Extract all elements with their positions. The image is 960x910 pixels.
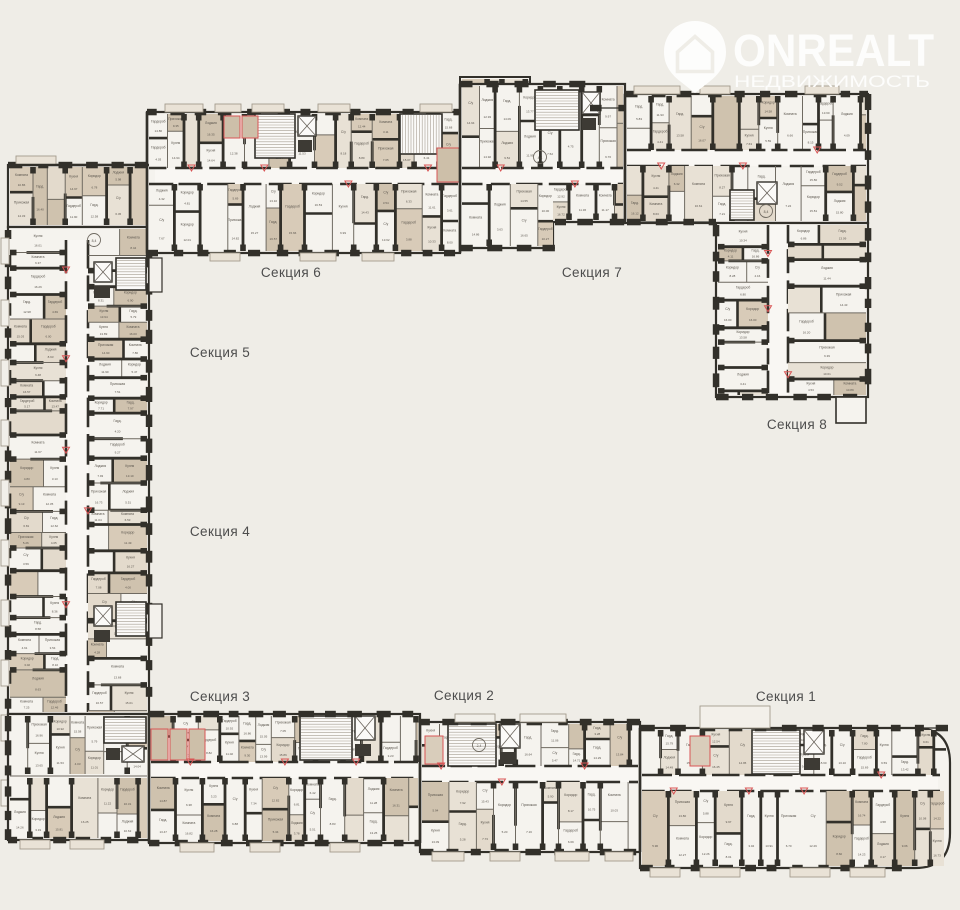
svg-text:15.58: 15.58 (74, 729, 82, 733)
svg-text:12.54: 12.54 (712, 739, 720, 743)
svg-text:12.26: 12.26 (702, 852, 710, 856)
svg-text:Кухня: Кухня (49, 535, 58, 539)
svg-text:7.05: 7.05 (280, 729, 286, 733)
svg-text:Лоджия: Лоджия (877, 842, 889, 846)
svg-text:14.26: 14.26 (16, 825, 24, 829)
svg-text:Гард.: Гард. (588, 792, 596, 796)
svg-text:Гард.: Гард. (159, 818, 167, 822)
svg-text:6.78: 6.78 (91, 186, 97, 190)
svg-text:13.84: 13.84 (616, 753, 624, 757)
svg-text:7.05: 7.05 (383, 158, 389, 162)
svg-text:11.99: 11.99 (526, 153, 534, 157)
svg-text:Прихожая: Прихожая (715, 174, 730, 178)
svg-text:Комната: Комната (855, 800, 868, 804)
svg-text:16.72: 16.72 (557, 213, 565, 217)
svg-text:13.47: 13.47 (159, 830, 167, 834)
svg-text:Прихожая: Прихожая (87, 725, 102, 729)
svg-text:Комната: Комната (157, 786, 170, 790)
svg-text:Комната: Комната (241, 745, 254, 749)
svg-text:С/у: С/у (273, 786, 278, 790)
svg-text:Коридор: Коридор (762, 101, 775, 105)
svg-text:14.09: 14.09 (503, 117, 511, 121)
svg-text:Прихожая: Прихожая (268, 817, 283, 821)
svg-text:Гард.: Гард. (51, 656, 59, 660)
svg-text:Гард.: Гард. (90, 203, 98, 207)
svg-text:С/у: С/у (233, 797, 238, 801)
svg-text:8.83: 8.83 (330, 822, 336, 826)
svg-text:Секция 2: Секция 2 (434, 688, 494, 703)
svg-text:Комната: Комната (649, 202, 662, 206)
svg-text:Прихожая: Прихожая (275, 721, 290, 725)
svg-text:Комната: Комната (608, 793, 621, 797)
svg-text:Коридор: Коридор (807, 195, 820, 199)
svg-text:Лоджия: Лоджия (368, 787, 380, 791)
svg-text:4.41: 4.41 (653, 186, 659, 190)
svg-text:12.27: 12.27 (679, 853, 687, 857)
svg-text:Гардероб: Гардероб (120, 788, 135, 792)
svg-text:Кухня: Кухня (34, 366, 43, 370)
svg-text:5.20: 5.20 (502, 830, 508, 834)
svg-text:Гард.: Гард. (718, 202, 726, 206)
svg-text:7.08: 7.08 (96, 585, 102, 589)
svg-text:5.47: 5.47 (131, 370, 137, 374)
svg-text:Лоджия: Лоджия (737, 373, 749, 377)
svg-text:Коридор: Коридор (128, 363, 141, 367)
svg-text:Коридор: Коридор (539, 194, 552, 198)
svg-text:Лоджия: Лоджия (53, 815, 65, 819)
svg-text:С/у: С/у (102, 600, 107, 604)
svg-text:14.04: 14.04 (133, 765, 141, 769)
svg-text:Лоджия: Лоджия (258, 723, 270, 727)
svg-text:Секция 3: Секция 3 (190, 689, 250, 704)
svg-text:7.92: 7.92 (460, 801, 466, 805)
svg-text:Гард.: Гард. (459, 822, 467, 826)
svg-text:Гард.: Гард. (23, 300, 31, 304)
svg-text:Гард.: Гард. (593, 745, 601, 749)
svg-text:3.63: 3.63 (497, 228, 503, 232)
svg-text:Комната: Комната (43, 492, 56, 496)
svg-text:3.28: 3.28 (594, 732, 600, 736)
svg-text:15.01: 15.01 (125, 701, 133, 705)
svg-text:Комната: Комната (32, 441, 45, 445)
svg-text:14.55: 14.55 (520, 199, 528, 203)
svg-text:8.58: 8.58 (35, 627, 41, 631)
svg-text:С/у: С/у (548, 131, 553, 135)
svg-text:Гард.: Гард. (36, 184, 44, 188)
svg-text:6.99: 6.99 (340, 231, 346, 235)
svg-text:7.16: 7.16 (526, 830, 532, 834)
svg-text:С/у: С/у (811, 814, 816, 818)
svg-text:14.87: 14.87 (159, 799, 167, 803)
svg-text:4.00: 4.00 (125, 585, 131, 589)
svg-text:Гардероб: Гардероб (799, 320, 814, 324)
svg-text:Комната: Комната (355, 117, 368, 121)
svg-text:НЕДВИЖИМОСТЬ: НЕДВИЖИМОСТЬ (734, 72, 930, 91)
svg-text:Коридор: Коридор (833, 835, 846, 839)
svg-text:Гард.: Гард. (129, 309, 137, 313)
svg-text:Коридор: Коридор (797, 229, 810, 233)
svg-text:Гард.: Гард. (50, 516, 58, 520)
svg-text:Гардероб: Гардероб (383, 746, 398, 750)
svg-text:16.00: 16.00 (749, 318, 757, 322)
svg-text:3.54: 3.54 (50, 646, 56, 650)
svg-text:С/у: С/у (703, 799, 708, 803)
svg-text:14.94: 14.94 (467, 121, 475, 125)
svg-text:12.44: 12.44 (358, 124, 366, 128)
svg-text:11.44: 11.44 (823, 277, 831, 281)
svg-text:13.68: 13.68 (114, 675, 122, 679)
svg-text:15.03: 15.03 (17, 335, 25, 339)
svg-text:8,4: 8,4 (764, 210, 769, 214)
svg-text:Комната: Комната (18, 638, 31, 642)
svg-text:4.09: 4.09 (844, 134, 850, 138)
svg-text:8.63: 8.63 (35, 687, 41, 691)
svg-text:3.11: 3.11 (383, 130, 389, 134)
svg-text:Кухня: Кухня (900, 814, 909, 818)
svg-text:13.65: 13.65 (35, 763, 43, 767)
svg-text:Комната: Комната (182, 821, 195, 825)
svg-text:7.71: 7.71 (98, 406, 104, 410)
svg-text:Гардероб: Гардероб (222, 719, 237, 723)
svg-text:9.13: 9.13 (19, 502, 25, 506)
svg-text:14.64: 14.64 (207, 159, 215, 163)
svg-text:4.03: 4.03 (155, 158, 161, 162)
svg-text:Секция 1: Секция 1 (756, 689, 816, 704)
svg-text:14.23: 14.23 (858, 853, 866, 857)
svg-text:Гардероб: Гардероб (20, 399, 35, 403)
svg-text:Кухня: Кухня (724, 803, 733, 807)
svg-text:Коридор: Коридор (88, 756, 101, 760)
svg-text:4.32: 4.32 (159, 197, 165, 201)
svg-text:5.26: 5.26 (23, 541, 29, 545)
svg-text:Комната: Комната (129, 343, 142, 347)
svg-text:С/у: С/у (468, 101, 473, 105)
svg-text:16.28: 16.28 (210, 829, 218, 833)
svg-text:14.82: 14.82 (232, 236, 240, 240)
svg-text:3.04: 3.04 (748, 844, 754, 848)
svg-text:4.58: 4.58 (880, 820, 886, 824)
svg-text:Коридор: Коридор (121, 531, 134, 535)
svg-text:14.49: 14.49 (666, 766, 674, 770)
svg-text:Кухня: Кухня (765, 814, 774, 818)
svg-text:Гардероб: Гардероб (832, 172, 847, 176)
svg-text:Лоджия: Лоджия (671, 172, 683, 176)
svg-text:10.89: 10.89 (846, 388, 854, 392)
svg-text:С/у: С/у (183, 721, 188, 725)
svg-text:Комната: Комната (576, 194, 589, 198)
svg-text:8.80: 8.80 (359, 156, 365, 160)
svg-text:Кухня: Кухня (69, 175, 78, 179)
svg-text:Коридор: Коридор (181, 191, 194, 195)
svg-text:6.69: 6.69 (568, 840, 574, 844)
svg-text:Гард.: Гард. (269, 220, 277, 224)
svg-text:Лоджия: Лоджия (122, 819, 134, 823)
svg-text:Гардероб: Гардероб (151, 146, 166, 150)
svg-text:16.45: 16.45 (712, 765, 720, 769)
svg-text:Прихожая: Прихожая (110, 382, 125, 386)
svg-text:7.51: 7.51 (115, 390, 121, 394)
svg-text:Комната: Комната (443, 229, 456, 233)
svg-text:16.31: 16.31 (124, 802, 132, 806)
svg-text:Кухня: Кухня (481, 821, 490, 825)
svg-text:14.94: 14.94 (172, 156, 180, 160)
svg-text:5.34: 5.34 (273, 830, 279, 834)
svg-text:13.09: 13.09 (432, 840, 440, 844)
svg-text:11.93: 11.93 (656, 113, 664, 117)
svg-text:10.03: 10.03 (610, 809, 618, 813)
svg-text:5.88: 5.88 (703, 812, 709, 816)
svg-text:Коридор: Коридор (312, 191, 325, 195)
svg-text:Кухня: Кухня (126, 556, 135, 560)
svg-text:Прихожая: Прихожая (18, 535, 33, 539)
svg-text:Коридор: Коридор (699, 835, 712, 839)
svg-text:4,4: 4,4 (538, 156, 543, 160)
svg-text:9.35: 9.35 (173, 124, 179, 128)
svg-text:14.95: 14.95 (739, 761, 747, 765)
svg-text:Секция 6: Секция 6 (261, 265, 321, 280)
svg-text:Гард.: Гард. (901, 760, 909, 764)
svg-text:С/у: С/у (522, 219, 527, 223)
svg-text:7.63: 7.63 (746, 142, 752, 146)
svg-text:16.73: 16.73 (933, 854, 941, 858)
svg-text:Лоджия: Лоджия (663, 755, 675, 759)
svg-text:Кухня: Кухня (50, 466, 59, 470)
svg-text:Комната: Комната (207, 814, 220, 818)
svg-text:Кухня: Кухня (426, 728, 435, 732)
svg-text:3.78: 3.78 (294, 831, 300, 835)
svg-text:6.41: 6.41 (424, 156, 430, 160)
svg-text:15.81: 15.81 (55, 827, 63, 831)
svg-text:С/у: С/у (483, 789, 488, 793)
svg-text:Лоджия: Лоджия (249, 204, 261, 208)
svg-text:16.74: 16.74 (858, 814, 866, 818)
svg-text:16.57: 16.57 (96, 701, 104, 705)
svg-text:15.80: 15.80 (810, 178, 818, 182)
svg-text:Кухня: Кухня (764, 126, 773, 130)
svg-text:Комната: Комната (91, 643, 104, 647)
svg-text:С/у: С/у (383, 222, 388, 226)
svg-text:3.54: 3.54 (383, 201, 389, 205)
svg-text:11.22: 11.22 (104, 801, 112, 805)
svg-text:11.04: 11.04 (94, 518, 102, 522)
svg-text:Кухня: Кухня (99, 325, 108, 329)
svg-text:Кухня: Кухня (431, 829, 440, 833)
svg-text:Прихожая: Прихожая (521, 803, 536, 807)
svg-text:Лоджия: Лоджия (122, 490, 134, 494)
svg-text:Гардероб: Гардероб (354, 141, 369, 145)
svg-text:Прихожая: Прихожая (45, 638, 60, 642)
svg-text:Лоджия: Лоджия (112, 170, 124, 174)
svg-text:8.36: 8.36 (52, 609, 58, 613)
svg-text:8.44: 8.44 (130, 246, 136, 250)
svg-text:9.30: 9.30 (244, 754, 250, 758)
svg-text:11.67: 11.67 (34, 450, 42, 454)
svg-text:Кухня: Кухня (933, 839, 942, 843)
svg-text:Лоджия: Лоджия (32, 677, 44, 681)
svg-text:Гардероб: Гардероб (857, 755, 872, 759)
svg-text:С/у: С/у (713, 753, 718, 757)
svg-text:С/у: С/у (271, 189, 276, 193)
svg-text:Комната: Комната (121, 512, 134, 516)
svg-text:Гардероб: Гардероб (285, 204, 300, 208)
svg-text:8.28: 8.28 (729, 274, 735, 278)
svg-text:16.01: 16.01 (34, 244, 42, 248)
svg-text:8.00: 8.00 (447, 241, 453, 245)
svg-text:С/у: С/у (341, 130, 346, 134)
svg-text:Кухня: Кухня (880, 743, 889, 747)
svg-text:9.27: 9.27 (115, 450, 121, 454)
svg-text:Секция 8: Секция 8 (767, 417, 827, 432)
svg-text:12.93: 12.93 (484, 115, 492, 119)
svg-text:8.10: 8.10 (52, 663, 58, 667)
svg-text:Гард.: Гард. (34, 621, 42, 625)
svg-text:Кухня: Кухня (711, 733, 720, 737)
svg-text:5.51: 5.51 (125, 500, 131, 504)
svg-text:Комната: Комната (425, 192, 438, 196)
svg-text:15.05: 15.05 (260, 734, 268, 738)
svg-text:16.96: 16.96 (35, 734, 43, 738)
svg-text:12.29: 12.29 (809, 844, 817, 848)
svg-text:16.00: 16.00 (129, 332, 137, 336)
svg-text:Кухня: Кухня (427, 226, 436, 230)
svg-text:Гардероб: Гардероб (66, 204, 81, 208)
svg-text:Прихожая: Прихожая (836, 293, 851, 297)
svg-text:9.76: 9.76 (605, 155, 611, 159)
svg-text:7.80: 7.80 (862, 742, 868, 746)
svg-text:Кухня: Кухня (125, 464, 134, 468)
svg-text:9.97: 9.97 (726, 820, 732, 824)
svg-text:Коридор: Коридор (101, 787, 114, 791)
svg-text:16.20: 16.20 (803, 331, 811, 335)
svg-text:Прихожая: Прихожая (781, 814, 796, 818)
svg-text:5.17: 5.17 (24, 404, 30, 408)
svg-text:4.20: 4.20 (115, 429, 121, 433)
svg-text:13.25: 13.25 (370, 831, 378, 835)
svg-text:Лоджия: Лоджия (821, 266, 833, 270)
svg-text:4.05: 4.05 (51, 541, 57, 545)
svg-text:Гард.: Гард. (127, 400, 135, 404)
svg-text:9.06: 9.06 (902, 844, 908, 848)
svg-text:Прихожая: Прихожая (91, 490, 106, 494)
svg-text:Секция 4: Секция 4 (190, 524, 250, 539)
svg-text:16.64: 16.64 (524, 753, 532, 757)
svg-text:3.19: 3.19 (35, 828, 41, 832)
svg-text:14.33: 14.33 (18, 214, 26, 218)
svg-text:5.79: 5.79 (130, 315, 136, 319)
svg-text:4.11: 4.11 (728, 254, 734, 258)
svg-text:10.08: 10.08 (919, 816, 927, 820)
svg-text:6.81: 6.81 (294, 803, 300, 807)
svg-text:С/у: С/у (700, 125, 705, 129)
svg-text:4.16: 4.16 (754, 274, 760, 278)
svg-text:Гард.: Гард. (503, 99, 511, 103)
svg-text:15.43: 15.43 (481, 800, 489, 804)
svg-text:Гардероб: Гардероб (48, 300, 63, 304)
svg-text:Кухня: Кухня (209, 784, 218, 788)
svg-text:10.61: 10.61 (823, 372, 831, 376)
svg-text:Коридор: Коридор (181, 222, 194, 226)
svg-text:16.61: 16.61 (695, 204, 703, 208)
svg-text:Коридор: Коридор (54, 720, 67, 724)
svg-text:16.65: 16.65 (520, 234, 528, 238)
svg-text:Гардероб: Гардероб (538, 227, 553, 231)
svg-text:14.86: 14.86 (155, 129, 163, 133)
svg-text:Гард.: Гард. (724, 842, 732, 846)
svg-text:Коридор: Коридор (290, 788, 303, 792)
svg-text:С/у: С/у (755, 265, 760, 269)
svg-text:7.67: 7.67 (159, 237, 165, 241)
svg-text:С/у: С/у (725, 307, 730, 311)
svg-text:Кухня: Кухня (125, 691, 134, 695)
svg-text:13.99: 13.99 (260, 755, 268, 759)
svg-text:7.24: 7.24 (785, 204, 791, 208)
svg-text:Коридор: Коридор (20, 466, 33, 470)
svg-text:8.27: 8.27 (719, 186, 725, 190)
svg-text:8.15: 8.15 (808, 141, 814, 145)
svg-text:Прихожая: Прихожая (31, 723, 46, 727)
svg-text:5.79: 5.79 (91, 739, 97, 743)
svg-text:Гард.: Гард. (758, 175, 766, 179)
svg-text:Кухня: Кухня (34, 234, 43, 238)
svg-text:Секция 5: Секция 5 (190, 345, 250, 360)
svg-text:5.51: 5.51 (310, 828, 316, 832)
svg-text:Кухня: Кухня (50, 601, 59, 605)
svg-text:Лоджия: Лоджия (205, 121, 217, 125)
svg-text:Гардероб: Гардероб (110, 443, 125, 447)
svg-text:3.41: 3.41 (740, 382, 746, 386)
svg-text:Лоджия: Лоджия (841, 112, 853, 116)
svg-text:Гардероб: Гардероб (31, 274, 46, 278)
svg-text:3.17: 3.17 (880, 855, 886, 859)
svg-text:10.92: 10.92 (226, 726, 234, 730)
svg-text:11.01: 11.01 (91, 765, 99, 769)
svg-text:Гард.: Гард. (573, 752, 581, 756)
svg-text:Прихожая: Прихожая (98, 343, 113, 347)
svg-text:13.58: 13.58 (739, 336, 747, 340)
svg-text:10.62: 10.62 (124, 829, 132, 833)
svg-text:14.90: 14.90 (102, 351, 110, 355)
svg-text:13.09: 13.09 (839, 237, 847, 241)
svg-text:14.97: 14.97 (70, 187, 78, 191)
svg-text:Прихожая: Прихожая (516, 190, 531, 194)
svg-text:Гард.: Гард. (631, 201, 639, 205)
svg-text:13.10: 13.10 (838, 761, 846, 765)
svg-text:Коридор: Коридор (21, 656, 34, 660)
svg-text:11.36: 11.36 (579, 208, 587, 212)
svg-text:14.71: 14.71 (573, 759, 581, 763)
svg-text:Кухня: Кухня (206, 149, 215, 153)
svg-text:16.07: 16.07 (698, 139, 706, 143)
svg-text:Лоджия: Лоджия (94, 464, 106, 468)
svg-text:14.86: 14.86 (472, 232, 480, 236)
svg-text:С/у: С/у (446, 142, 451, 146)
svg-text:6.32: 6.32 (674, 182, 680, 186)
svg-text:Гард.: Гард. (676, 112, 684, 116)
svg-text:16.12: 16.12 (631, 212, 639, 216)
svg-text:Комната: Комната (71, 721, 84, 725)
svg-text:8.93: 8.93 (48, 355, 54, 359)
svg-text:10.27: 10.27 (542, 237, 550, 241)
svg-text:Гардероб: Гардероб (121, 577, 136, 581)
svg-text:15.68: 15.68 (445, 125, 453, 129)
svg-text:Коридор: Коридор (32, 817, 45, 821)
svg-text:8.18: 8.18 (340, 152, 346, 156)
svg-text:13.62: 13.62 (382, 238, 390, 242)
svg-text:15.80: 15.80 (836, 211, 844, 215)
svg-text:11.06: 11.06 (551, 739, 559, 743)
svg-text:11.28: 11.28 (370, 801, 378, 805)
svg-text:Прихожая: Прихожая (600, 139, 615, 143)
